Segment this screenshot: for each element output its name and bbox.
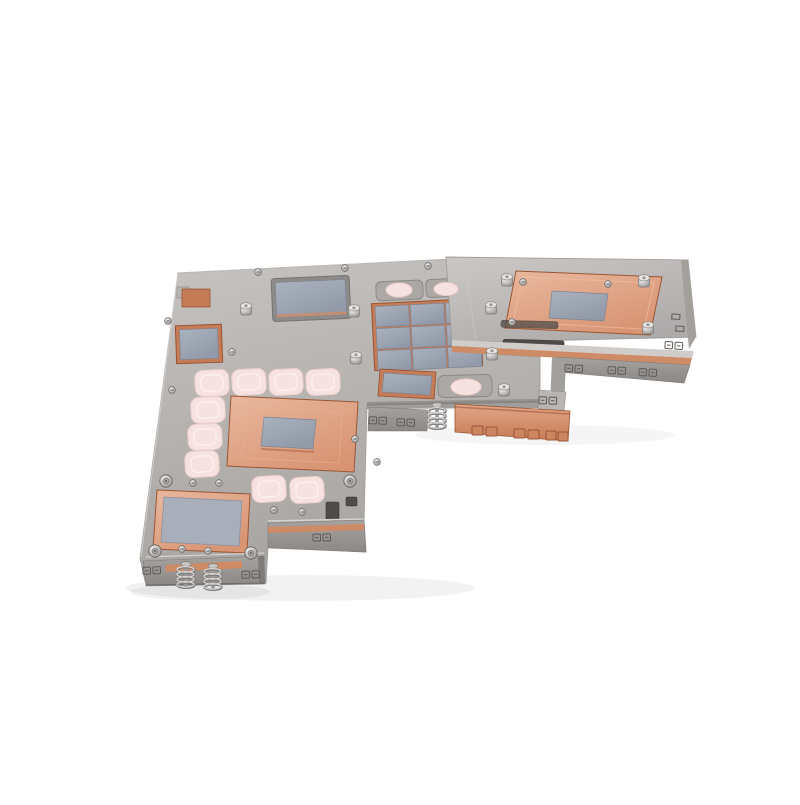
hex-standoff	[241, 303, 252, 315]
thermal-paste-pad	[251, 475, 286, 503]
right-die-pad	[549, 291, 608, 321]
slot-cutout	[326, 502, 339, 520]
small-screw	[509, 319, 516, 326]
thermal-paste-oval	[386, 283, 412, 297]
small-screw	[342, 265, 349, 272]
small-screw	[352, 436, 359, 443]
small-screw	[216, 480, 223, 487]
hex-standoff	[499, 384, 510, 396]
block-side-edge	[258, 556, 265, 584]
small-screw	[190, 480, 197, 487]
bottom-copper-pad	[153, 490, 250, 553]
cold-plate-photo	[0, 0, 800, 800]
small-screw	[299, 509, 306, 516]
thermal-paste-pad	[268, 368, 303, 396]
small-screw	[374, 459, 381, 466]
small-screw	[520, 279, 527, 286]
small-screw	[425, 263, 432, 270]
thermal-paste-pad	[184, 450, 219, 478]
socket-screw	[344, 475, 356, 487]
thermal-paste-oval	[451, 379, 481, 395]
bottom-thermal-pad	[161, 497, 242, 546]
hex-standoff	[351, 352, 362, 364]
small-screw	[605, 281, 612, 288]
thermal-paste-pad	[190, 396, 225, 424]
copper-notch-tab	[177, 287, 210, 307]
hex-standoff	[349, 305, 360, 317]
lower-apron	[268, 520, 366, 552]
thermal-paste-pad	[305, 368, 340, 396]
product-photo	[0, 0, 800, 800]
gpu-die-pad	[261, 417, 316, 449]
gpu-copper-pad	[227, 396, 358, 472]
hex-standoff	[639, 275, 650, 287]
small-screw	[271, 507, 278, 514]
thermal-paste-oval	[434, 283, 458, 296]
thermal-paste-pad	[231, 368, 266, 396]
stamped-tab	[665, 341, 683, 349]
hex-standoff	[487, 348, 498, 360]
top-thermal-pad	[271, 275, 351, 321]
socket-screw	[160, 475, 172, 487]
small-screw	[179, 546, 186, 553]
hex-standoff	[486, 302, 497, 314]
socket-screw	[149, 545, 161, 557]
small-screw	[169, 387, 176, 394]
thermal-paste-pad	[289, 476, 324, 504]
thermal-paste-pad	[187, 423, 222, 451]
hex-standoff	[502, 274, 513, 286]
small-screw	[205, 548, 212, 555]
thermal-paste-pad	[194, 369, 229, 397]
socket-screw	[245, 547, 257, 559]
small-screw	[229, 349, 236, 356]
mid-thermal-pad	[378, 369, 436, 399]
slot-cutout	[346, 497, 357, 506]
left-thermal-pad	[175, 324, 222, 364]
small-screw	[165, 318, 172, 325]
hex-standoff	[643, 322, 654, 334]
small-screw	[255, 269, 262, 276]
